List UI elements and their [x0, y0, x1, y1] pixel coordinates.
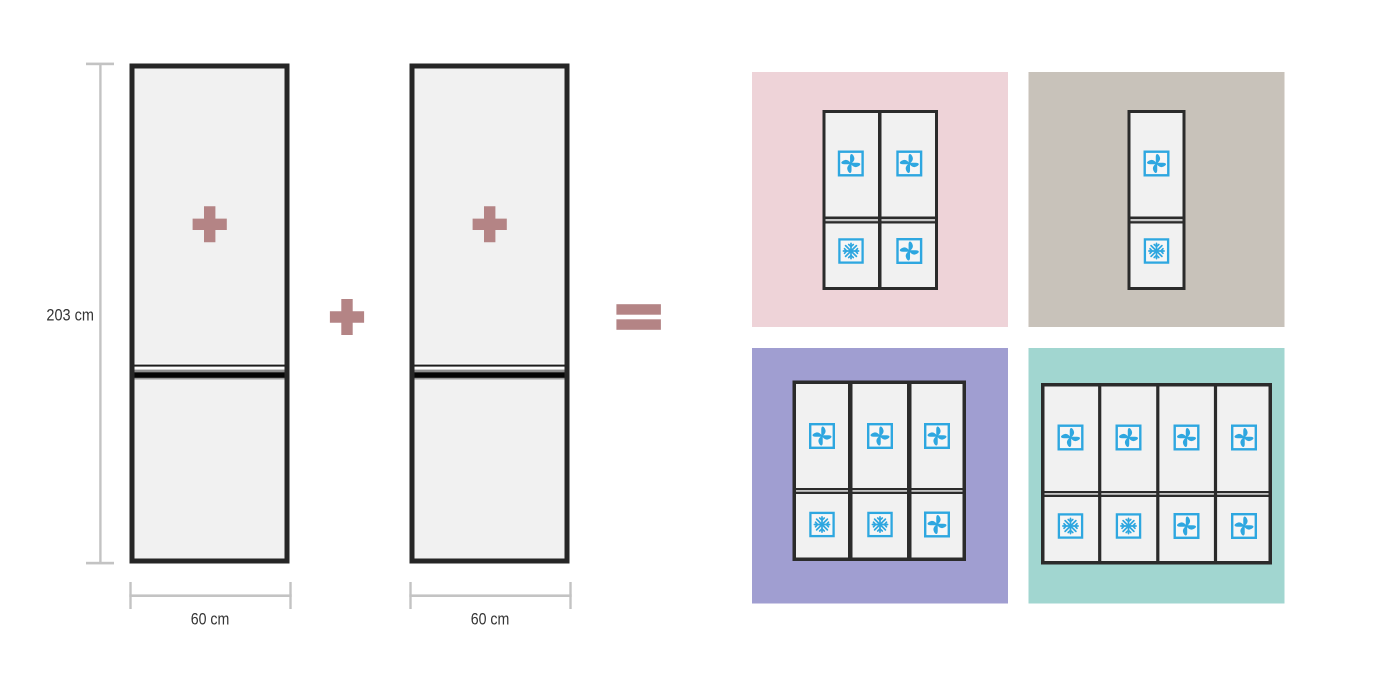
- svg-text:203 cm: 203 cm: [46, 306, 94, 325]
- svg-text:60 cm: 60 cm: [471, 610, 510, 629]
- svg-text:60 cm: 60 cm: [191, 610, 230, 629]
